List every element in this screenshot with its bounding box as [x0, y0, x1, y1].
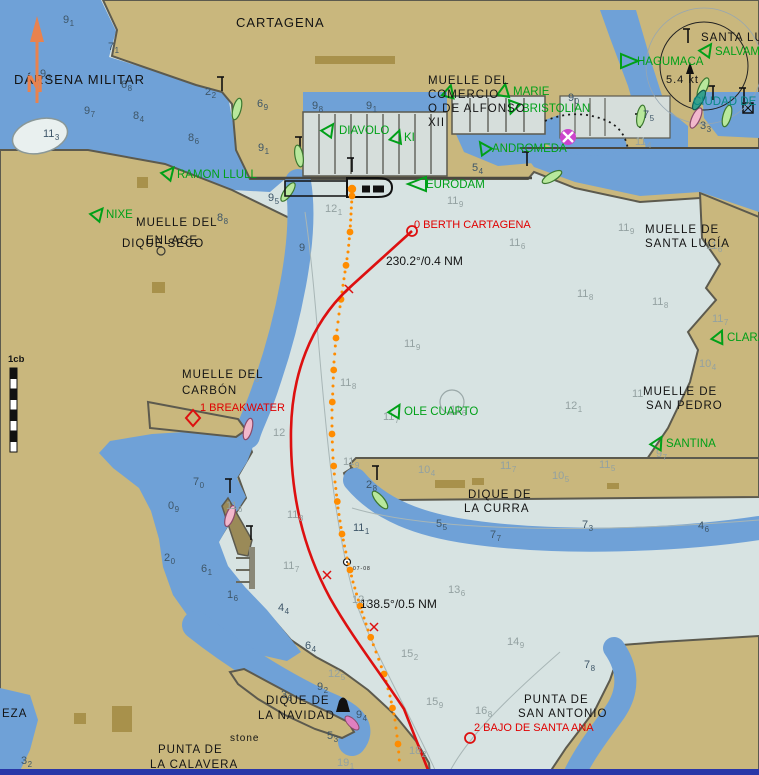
own-ship-position-dot — [348, 185, 356, 193]
track-dot — [339, 520, 342, 523]
track-dot — [339, 531, 346, 538]
place-label: PUNTA DE — [524, 694, 589, 706]
place-label: MUELLE DE — [645, 224, 719, 236]
track-dot — [346, 257, 349, 260]
place-label: CARBÓN — [182, 384, 237, 397]
vessel-name-label: CLARA — [727, 332, 759, 344]
track-dot — [331, 425, 334, 428]
track-dot — [365, 623, 368, 626]
track-dot — [352, 581, 355, 584]
scale-segment — [10, 410, 17, 421]
track-dot — [331, 449, 334, 452]
place-label: MUELLE DEL — [182, 369, 264, 381]
scale-segment — [10, 389, 17, 400]
scale-segment — [10, 442, 17, 453]
vessel-name-label: SALVAMA — [715, 46, 759, 58]
track-dot — [397, 751, 400, 754]
scale-segment — [10, 421, 17, 432]
track-dot — [353, 587, 356, 590]
place-label: COMERCIO — [428, 89, 499, 101]
track-dot — [332, 457, 335, 460]
building — [315, 56, 395, 64]
building — [137, 177, 148, 188]
vessel-name-label: MARIE — [513, 86, 550, 98]
track-dot — [331, 417, 334, 420]
track-dot — [334, 487, 337, 490]
place-label: SAN PEDRO — [646, 400, 723, 412]
depth-sounding: 11 — [632, 388, 643, 400]
track-dot — [372, 643, 375, 646]
track-dot — [350, 207, 353, 210]
place-label: DIQUE DE — [468, 489, 532, 501]
track-dot — [390, 701, 393, 704]
track-dot — [331, 409, 334, 412]
vessel-name-label: EURODAM — [426, 179, 485, 191]
route-leg-label: 138.5°/0.5 NM — [360, 597, 437, 611]
scale-segment — [10, 368, 17, 379]
place-label: 07-08 — [353, 566, 371, 572]
track-dot — [344, 271, 347, 274]
building — [435, 480, 465, 488]
place-label: MUELLE DEL — [136, 217, 218, 229]
track-dot — [363, 617, 366, 620]
track-dot — [343, 262, 350, 269]
vessel-name-label: RAMON LLULL — [177, 169, 257, 181]
track-dot — [348, 237, 351, 240]
place-label: PUNTA DE — [158, 744, 223, 756]
track-dot — [330, 367, 337, 374]
building — [74, 713, 86, 724]
scale-segment — [10, 400, 17, 411]
track-dot — [395, 741, 402, 748]
place-label: MUELLE DE — [643, 386, 717, 398]
place-label: O DE ALFONSO — [428, 103, 526, 115]
bottom-bar — [0, 769, 759, 775]
place-label: SAN ANTONIO — [518, 708, 607, 720]
track-dot — [342, 539, 345, 542]
vessel-name-label: KI — [404, 132, 415, 144]
building — [152, 282, 165, 293]
vessel-name-label: OLE CUARTO — [404, 406, 478, 418]
track-dot — [332, 385, 335, 388]
vessel-name-label: SANTINA — [666, 438, 716, 450]
track-dot — [389, 695, 392, 698]
track-dot — [350, 213, 353, 216]
building — [112, 706, 132, 732]
place-label: 5.4 kt — [666, 74, 699, 86]
track-dot — [347, 244, 350, 247]
track-dot — [380, 665, 383, 668]
waypoint-label: 2 BAJO DE SANTA ANA — [474, 722, 594, 734]
track-dot — [395, 727, 398, 730]
track-dot — [347, 251, 350, 254]
track-dot — [340, 526, 343, 529]
vessel-name-label: DIAVOLO — [339, 125, 389, 137]
track-dot — [337, 321, 340, 324]
scale-segment — [10, 379, 17, 390]
track-dot — [347, 229, 354, 236]
track-dot — [333, 361, 336, 364]
track-dot — [329, 399, 336, 406]
track-dot — [333, 335, 340, 342]
track-dot — [343, 545, 346, 548]
track-dot — [334, 345, 337, 348]
track-dot — [332, 377, 335, 380]
track-dot — [337, 507, 340, 510]
place-label: DIQUE SECO — [122, 238, 204, 250]
track-dot — [398, 759, 401, 762]
place-label: DIQUE DE — [266, 695, 330, 707]
track-dot — [350, 201, 353, 204]
place-label: SANTA LUCÍA — [645, 237, 730, 250]
place-label: MUELLE DEL — [428, 75, 510, 87]
track-dot — [331, 393, 334, 396]
track-dot — [338, 513, 341, 516]
obstruction-dot — [346, 561, 348, 563]
place-label: SANTA LU — [701, 32, 759, 44]
vessel-name-label: ANDROMEDA — [492, 143, 567, 155]
scale-label: 1cb — [8, 354, 25, 365]
track-dot — [349, 225, 352, 228]
vessel-name-label: CIUDAD DE — [693, 96, 757, 108]
track-dot — [396, 735, 399, 738]
window-bottom-bar — [0, 769, 759, 775]
ais-target-ciudad-de[interactable]: CIUDAD DE — [693, 96, 757, 108]
track-dot — [344, 551, 347, 554]
track-dot — [394, 719, 397, 722]
track-dot — [377, 658, 380, 661]
vessel-name-label: NIXE — [106, 209, 133, 221]
track-dot — [330, 463, 337, 470]
place-label: LA NAVIDAD — [258, 710, 335, 722]
building — [472, 478, 484, 485]
track-dot — [335, 494, 338, 497]
track-dot — [367, 629, 370, 632]
waypoint-label: 0 BERTH CARTAGENA — [414, 219, 531, 231]
waypoint-label: 1 BREAKWATER — [200, 402, 285, 414]
track-dot — [347, 563, 350, 566]
track-dot — [346, 557, 349, 560]
track-dot — [334, 481, 337, 484]
track-dot — [350, 575, 353, 578]
depth-sounding: 9 — [299, 242, 305, 254]
track-dot — [392, 713, 395, 716]
ship-block — [373, 186, 384, 193]
yacht-marina-slips — [303, 112, 447, 176]
building — [607, 483, 619, 489]
track-dot — [334, 498, 341, 505]
place-label: EZA — [2, 708, 27, 720]
north-letter: N — [26, 71, 43, 98]
track-dot — [367, 634, 374, 641]
comercio-pier-slips — [452, 96, 545, 134]
route-leg-label: 230.2°/0.4 NM — [386, 254, 463, 268]
chart-canvas[interactable]: 0 BERTH CARTAGENA1 BREAKWATER2 BAJO DE S… — [0, 0, 759, 775]
scale-segment — [10, 431, 17, 442]
chart-window: 0 BERTH CARTAGENA1 BREAKWATER2 BAJO DE S… — [0, 0, 759, 775]
track-dot — [343, 277, 346, 280]
ship-block — [362, 186, 370, 193]
track-dot — [349, 193, 356, 200]
place-label: CARTAGENA — [236, 15, 325, 30]
place-label: stone — [230, 733, 259, 744]
track-dot — [333, 473, 336, 476]
track-dot — [339, 305, 342, 308]
place-label: XII — [428, 117, 445, 129]
track-dot — [375, 651, 378, 654]
track-dot — [389, 705, 396, 712]
track-dot — [349, 219, 352, 222]
place-label: LA CURRA — [464, 503, 530, 515]
vessel-name-label: BRISTOLIAN — [522, 103, 590, 115]
track-dot — [333, 353, 336, 356]
track-dot — [336, 329, 339, 332]
vessel-name-label: HAGUMACA — [637, 56, 704, 68]
depth-sounding: 12 — [273, 427, 285, 439]
track-dot — [331, 441, 334, 444]
track-dot — [338, 313, 341, 316]
track-dot — [342, 284, 345, 287]
track-dot — [329, 431, 336, 438]
